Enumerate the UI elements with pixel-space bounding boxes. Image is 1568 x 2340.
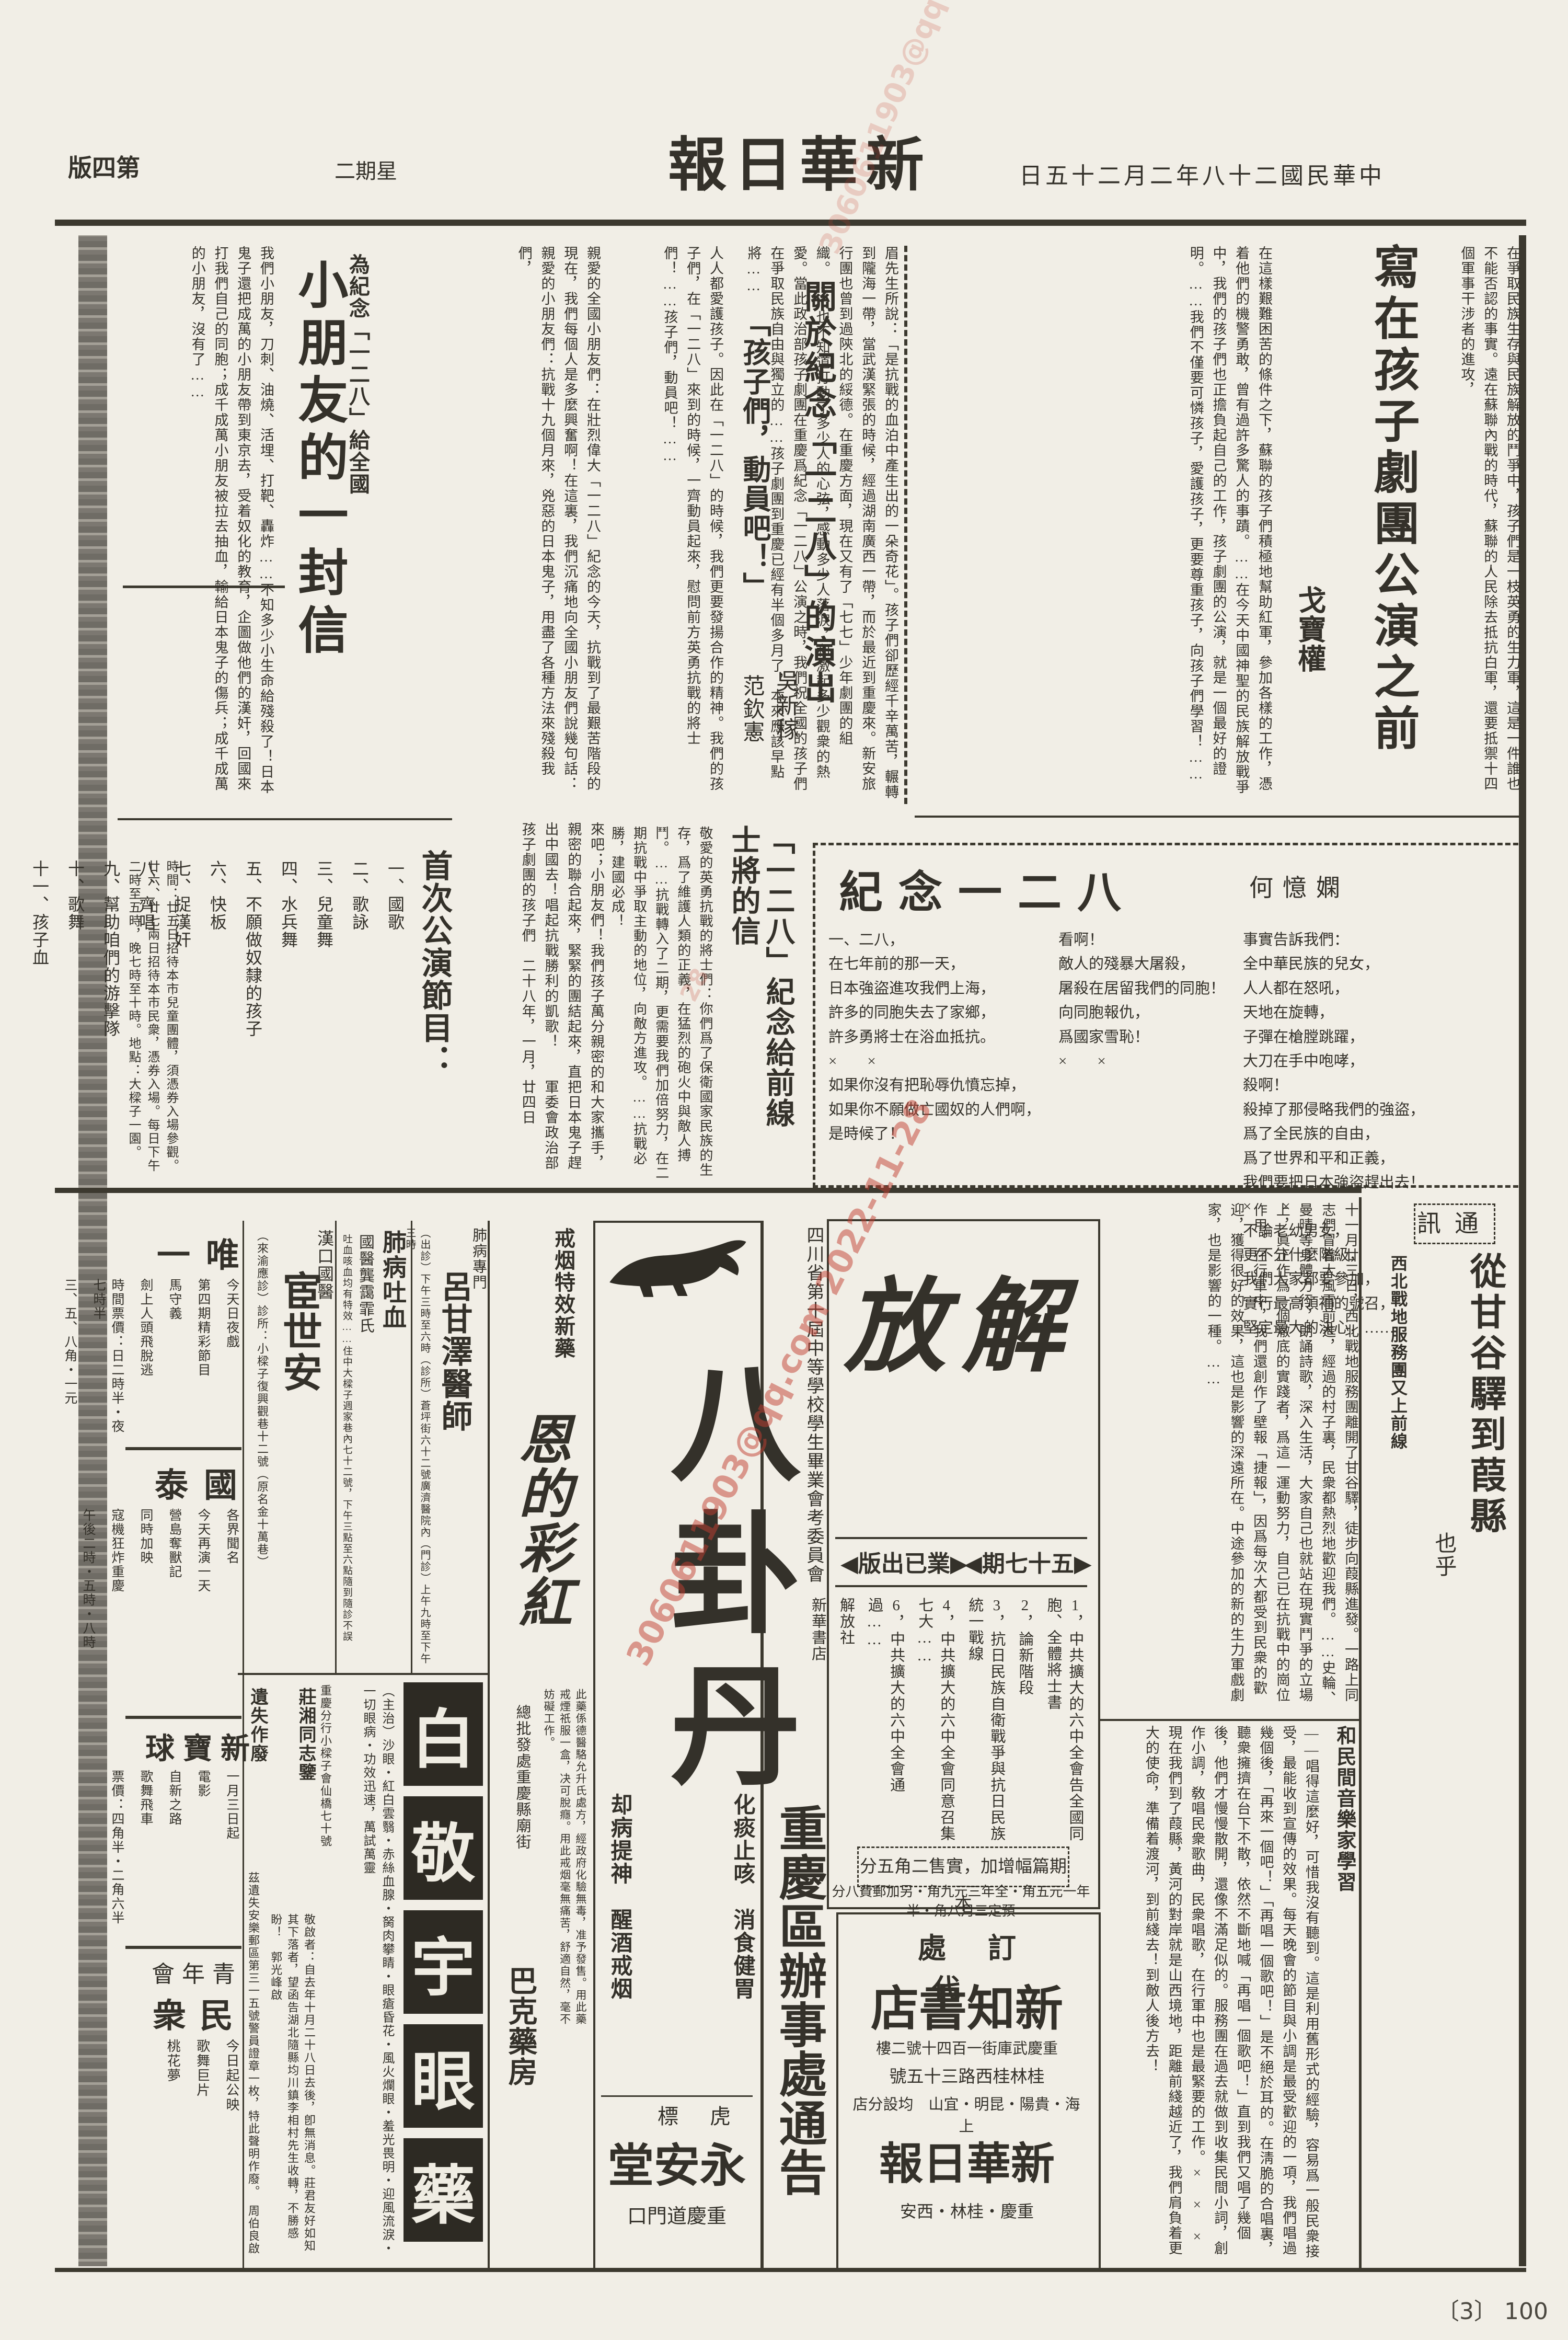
xinzhi-name: 店書知新 bbox=[852, 1970, 1082, 2039]
jiefang-status: ◀版出已業▶ bbox=[840, 1545, 968, 1578]
poem-author: 何憶嫻 bbox=[1249, 869, 1350, 903]
doctor-gong-title: 肺病吐血 bbox=[375, 1230, 410, 1449]
poem-title: 紀念一二八 bbox=[839, 857, 1137, 921]
theater-line: 第四期精彩節目 bbox=[194, 1278, 212, 1440]
program-item: 十、歌舞 bbox=[63, 860, 88, 1174]
theater-line: 一月三日起 bbox=[223, 1770, 241, 1940]
correspondence-label-box: 訊通 bbox=[1414, 1203, 1495, 1244]
poem-line: 爲了世界和平和正義， bbox=[1243, 1146, 1425, 1171]
jiefang-content-item: 2，論新階段 bbox=[1014, 1597, 1036, 1843]
doctor-divider-1 bbox=[411, 1221, 412, 1673]
theater-line: 同時加映 bbox=[136, 1508, 155, 1710]
eyemed-char-block: 藥 bbox=[403, 2138, 483, 2242]
poem-line: 如果你沒有把恥辱仇憤忘掉， bbox=[828, 1073, 1041, 1097]
jiefang-content-item: 6，中共擴大的六中全會通過…… bbox=[863, 1597, 907, 1843]
poem-line: 爲國家雪恥！ bbox=[1058, 1025, 1225, 1049]
jiefang-issue: ◀期七十五▶ bbox=[964, 1545, 1092, 1578]
jieyan-body: 此藥係德醫駱允升氏處方，經政府化驗無毒，准予發售。用此藥戒煙祇服一盒，决可脫癮。… bbox=[543, 1689, 589, 2034]
correspondence-body1: 十一月廿三日，西北戰地服務團離開了甘谷驛，徒步向葭縣進發。一路上同志們冒着大風雪… bbox=[1100, 1202, 1362, 1717]
theater-rule-1 bbox=[125, 1447, 241, 1450]
program-item: 五、不願做奴隸的孩子 bbox=[240, 860, 266, 1174]
article-troupe-author: 戈寶權 bbox=[1289, 586, 1330, 795]
poem-line: 向同胞報仇， bbox=[1058, 1001, 1225, 1025]
theater-line: 今天日夜戲 bbox=[223, 1278, 241, 1440]
eyemed-char-block: 白 bbox=[403, 1682, 483, 1786]
poem-line: 人人都在怒吼， bbox=[1243, 977, 1425, 1001]
theater-line: 電影 bbox=[194, 1770, 212, 1940]
poem-line: 看啊！ bbox=[1058, 928, 1225, 952]
bagua-line2: 却病提神 醒酒戒烟 bbox=[604, 1793, 636, 2086]
bottom-rule bbox=[55, 2268, 1526, 2272]
xinzhi-cities: 安西・林桂・慶重 bbox=[868, 2198, 1066, 2222]
theater-rule-2 bbox=[125, 1716, 241, 1719]
theater-line: 三、五、八角・一元 bbox=[61, 1278, 79, 1440]
correspondence-body2: ——唱得這麼好，可惜我沒有聽到。這是利用舊形式的經驗，容易爲一般民衆接受，最能收… bbox=[1100, 1725, 1322, 2264]
correspondence-subhead2: 和民間音樂家學習 bbox=[1330, 1725, 1359, 1955]
correspondence-subhead: 西北戰地服務團又上前線 bbox=[1386, 1255, 1410, 1547]
poem-line: 爲了全民族的自由， bbox=[1243, 1122, 1425, 1146]
theater-line: 營島奪獸記 bbox=[165, 1508, 183, 1710]
poem-line: 殺掉了那侵略我們的強盜， bbox=[1243, 1098, 1425, 1122]
poem-line: 日本強盜進攻我們上海， bbox=[828, 977, 1041, 1001]
poem-columns: 一、二八，在七年前的那一天，日本強盜進攻我們上海，許多的同胞失去了家鄉，許多勇將… bbox=[828, 928, 1508, 1174]
eyemed-char-block: 宇 bbox=[403, 1910, 483, 2014]
poem-line: 全中華民族的兒女， bbox=[1243, 952, 1425, 976]
binding-edge bbox=[78, 235, 107, 2266]
program-item: 二、歌詠 bbox=[347, 860, 372, 1174]
theater-line: 票價：四角半・二角六半 bbox=[108, 1770, 126, 1940]
band1-rule-left bbox=[118, 818, 452, 820]
tiger-icon bbox=[604, 1230, 750, 1313]
masthead-rule bbox=[55, 220, 1526, 226]
notice-lost-title: 遺失作廢 bbox=[245, 1688, 270, 1865]
bagua-line1: 化痰止咳 消食健胃 bbox=[727, 1793, 758, 2086]
article-letter-cont: 來吧；小朋友們！我們孩子萬分親密的和大家攜手，親密的聯合起來，緊緊的團結起來，直… bbox=[456, 822, 607, 1183]
poem-line: × × bbox=[828, 1049, 1041, 1073]
correspondence-title: 從甘谷驛到葭縣 bbox=[1458, 1252, 1511, 1592]
theater-minzhong-lines: 今日起公映歌舞巨片桃花夢 bbox=[127, 2039, 241, 2258]
wavy-divider-1 bbox=[904, 246, 907, 804]
masthead-title: 報日華新 bbox=[653, 118, 946, 202]
article-troupe-body-a: 在爭取民族生存與民族解放的鬥爭中，孩子們是一枝英勇的生力軍，這是一件誰也不能否認… bbox=[1432, 246, 1524, 800]
edition-label: 版四第 bbox=[68, 149, 140, 183]
theater-line: 劍上人頭飛脫逃 bbox=[136, 1278, 155, 1440]
jieyan-dist: 總批發處重慶縣廟街 bbox=[511, 1704, 533, 1945]
eyemed-char-block: 敬 bbox=[403, 1796, 483, 1900]
jiefang-contents: 1，中共擴大的六中全會告全國同胞、全體將士書2，論新階段3，抗日民族自衛戰爭與抗… bbox=[835, 1597, 1086, 1843]
program-item: 六、快板 bbox=[205, 860, 230, 1174]
doctor-gong-name: 國醫龔靄霏氏 bbox=[353, 1234, 376, 1537]
poem-line: 事實告訴我們： bbox=[1243, 928, 1425, 952]
theater-line: 馬守義 bbox=[165, 1278, 183, 1440]
jiefang-rule-b bbox=[835, 1585, 1087, 1587]
theater-line: 午後二時・五時・八時 bbox=[79, 1508, 97, 1710]
program-item: 三、兒童舞 bbox=[312, 860, 337, 1174]
theater-guotai-lines: 各界聞名今天再演一天營島奪獸記同時加映寇機狂炸重慶午後二時・五時・八時 bbox=[127, 1508, 241, 1710]
poem-line: 大刀在手中咆哮， bbox=[1243, 1049, 1425, 1073]
theater-line: 自新之路 bbox=[165, 1770, 183, 1940]
article-mobilize-author: 范欽憲 bbox=[736, 674, 768, 800]
article-frontline-title2: 士將的信 bbox=[722, 825, 765, 1034]
poem-line: × × bbox=[1058, 1049, 1225, 1073]
eyemed-branch: 重慶分行小樑子會仙橋七十號 bbox=[318, 1684, 333, 2264]
article-performance-body: 眉先生所說：「是抗戰的血泊中產生出的一朵奇花」。孩子們卻歷經千辛萬苦，輾轉到隴海… bbox=[836, 246, 902, 802]
poem-line: 是時候了！ bbox=[828, 1122, 1041, 1146]
doctor-lu-name: 呂甘澤醫師 bbox=[432, 1270, 477, 1605]
program-item: 十一、孩子血 bbox=[27, 860, 52, 1174]
bagua-store: 堂安永 bbox=[606, 2129, 747, 2195]
theater-weiyi-lines: 今天日夜戲第四期精彩節目馬守義劍上人頭飛脫逃時間票價：日二時半・夜七時半三、五、… bbox=[127, 1278, 241, 1440]
article-mobilize-title: 「孩子們，動員吧！」 bbox=[734, 308, 775, 643]
jiefang-name: 放解 bbox=[836, 1244, 1087, 1392]
jiefang-content-item: 解放社 bbox=[835, 1597, 857, 1843]
xinzhi-addr2: 號五十三路西桂林桂 bbox=[852, 2062, 1082, 2087]
poem-col-2: 看啊！敵人的殘暴大屠殺，屠殺在居留我們的同胞！向同胞報仇，爲國家雪恥！× × bbox=[1058, 928, 1225, 1174]
theater-minzhong-name: 衆民 bbox=[153, 1989, 247, 2037]
poem-line: 一、二八， bbox=[828, 928, 1041, 952]
notice-zhuang-body: 敬啟者：自去年十月二十八日去後，卽無消息。莊君友好如知其下落者，望函告湖北隨縣均… bbox=[268, 1913, 317, 2264]
theater-xinbaoqiu-name: 球寶新 bbox=[145, 1725, 258, 1768]
jiefang-content-item: 3，抗日民族自衛戰爭與抗日民族統一戰線 bbox=[964, 1597, 1008, 1843]
eyemed-indications: （主治）沙眼・紅白雲翳・赤絲血腺・胬肉攀睛・眼瘡昏花・風火爛眼・羞光畏明・迎風流… bbox=[335, 1684, 396, 2264]
article-letter-title: 小朋友的一封信 bbox=[282, 259, 355, 792]
program-note: 時間：廿五日招待本市兒童團體，須憑券入場參觀。廿六、廿七兩日招待本市民衆，憑券入… bbox=[125, 860, 180, 1174]
bagua-brand: 標虎 bbox=[658, 2100, 762, 2130]
doctor-huan-name: 宦世安 bbox=[270, 1270, 327, 1521]
correspondence-label: 訊通 bbox=[1417, 1210, 1492, 1237]
theater-line: 今日起公映 bbox=[222, 2039, 241, 2258]
xinzhi-paper: 報日華新 bbox=[862, 2129, 1071, 2192]
article-troupe-title: 寫在孩子劇團公演之前 bbox=[1359, 243, 1425, 802]
poem-line: 許多勇將士在浴血抵抗。 bbox=[828, 1025, 1041, 1049]
doctors-bottom-rule bbox=[238, 1673, 489, 1675]
theater-line: 時間票價：日二時半・夜七時半 bbox=[89, 1278, 126, 1440]
jieyan-name: 恩的彩紅 bbox=[502, 1412, 579, 1673]
poem-col-3: 事實告訴我們：全中華民族的兒女，人人都在怒吼，天地在旋轉，子彈在槍膛跳躍，大刀在… bbox=[1243, 928, 1425, 1174]
theater-line: 寇機狂炸重慶 bbox=[108, 1508, 126, 1710]
article-letter-body1: 親愛的全國小朋友們：在壯烈偉大「一二八」紀念的今天，抗戰到了最艱苦階段的現在，我… bbox=[371, 246, 604, 802]
eyemed-char-block: 眼 bbox=[403, 2024, 483, 2128]
article-mobilize-body: 人人都愛護孩子。因此在「一二八」的時候，我們更要發揚合作的精神。我們的孩子們，在… bbox=[619, 246, 727, 802]
jiefang-rule-a bbox=[835, 1537, 1087, 1539]
xinzhi-addr1: 樓二號十四百一街庫武慶重 bbox=[852, 2036, 1082, 2058]
band3-rule bbox=[55, 1188, 1362, 1193]
theater-weiyi-name: 一唯 bbox=[157, 1229, 255, 1277]
theater-line: 歌舞飛車 bbox=[136, 1770, 155, 1940]
doctor-huan-info: （來渝應診）診所：小樑子復興觀巷十二號（原名金十萬巷） bbox=[248, 1230, 270, 1669]
poem-line: 殺啊！ bbox=[1243, 1073, 1425, 1097]
program-title: 首次公演節目： bbox=[412, 850, 457, 1163]
article-frontline-body: 敬愛的英勇抗戰的將士們：你們爲了保衛國家民族的生存，爲了維護人類的正義，在猛烈的… bbox=[612, 826, 716, 1182]
jieyan-store: 巴克藥房 bbox=[499, 1966, 541, 2112]
poem-line: 許多的同胞失去了家鄉， bbox=[828, 1001, 1041, 1025]
article-letter-body2: 我們小朋友，刀刺、油燒、活埋、打靶、轟炸……不知多少小生命給殘殺了！日本鬼子還把… bbox=[118, 246, 277, 800]
program-item: 九、幫助咱們的游擊隊 bbox=[98, 860, 123, 1174]
poem-line: 子彈在槍膛跳躍， bbox=[1243, 1025, 1425, 1049]
theater-minzhong-venue: 會年青 bbox=[152, 1955, 243, 1989]
program-items: 一、國歌二、歌詠三、兒童舞四、水兵舞五、不願做奴隸的孩子六、快板七、捉漢奸八、齊… bbox=[186, 860, 408, 1174]
theater-line: 各界聞名 bbox=[223, 1508, 241, 1710]
correspondence-rule bbox=[1100, 1719, 1359, 1721]
poem-line: 如果你不願做亡國奴的人們啊， bbox=[828, 1098, 1041, 1122]
correspondence-author: 也乎 bbox=[1428, 1532, 1460, 1636]
notice-zhuang-title: 莊湘同志鑒 bbox=[293, 1688, 318, 1907]
program-item: 四、水兵舞 bbox=[276, 860, 301, 1174]
poem-line: 在七年前的那一天， bbox=[828, 952, 1041, 976]
weekday-label: 二期星 bbox=[335, 154, 397, 185]
poem-col-1: 一、二八，在七年前的那一天，日本強盜進攻我們上海，許多的同胞失去了家鄉，許多勇將… bbox=[828, 928, 1041, 1174]
jiefang-content-item: 4，中共擴大的六中全會同意召集七大…… bbox=[914, 1597, 958, 1843]
doctor-lu-info: （出診）下午三時至六時（診所）蒼坪街六十二號廣濟醫院內（門診）上午九時至下午三時 bbox=[413, 1228, 432, 1667]
theater-xinbaoqiu-lines: 一月三日起電影自新之路歌舞飛車票價：四角半・二角六半 bbox=[127, 1770, 241, 1940]
poem-line: 敵人的殘暴大屠殺， bbox=[1058, 952, 1225, 976]
doctor-gong-info: 吐血咳血均有特效……住中大樑子週家巷內七十二號，下午三點至六點隨到隨診不誤 bbox=[338, 1234, 353, 1668]
article-performance-author: 吳新稼 bbox=[768, 669, 802, 800]
band1-rule-right bbox=[915, 816, 1524, 818]
program-item: 一、國歌 bbox=[383, 860, 408, 1174]
theater-guotai-name: 泰國 bbox=[155, 1459, 253, 1507]
masthead-date: 日五十二月二年八十二國民華中 bbox=[1019, 157, 1385, 190]
bagua-address: 口門道慶重 bbox=[622, 2200, 732, 2229]
eyemed-blocks: 白敬宇眼藥 bbox=[403, 1682, 483, 2252]
bagua-rule bbox=[601, 2095, 753, 2097]
jiefang-content-item: 1，中共擴大的六中全會告全國同胞、全體將士書 bbox=[1042, 1597, 1086, 1843]
poem-line: 天地在旋轉， bbox=[1243, 1001, 1425, 1025]
article-troupe-body-b: 在這樣艱難困苦的條件之下，蘇聯的孩子們積極地幫助紅軍，參加各樣的工作，憑着他們的… bbox=[915, 246, 1275, 802]
theater-line: 今天再演一天 bbox=[194, 1508, 212, 1710]
theater-line: 歌舞巨片 bbox=[192, 2039, 211, 2258]
theater-line: 桃花夢 bbox=[163, 2039, 182, 2258]
bagua-name: 八卦丹 bbox=[627, 1354, 816, 1929]
archive-page-label: 〔3〕 100 bbox=[1436, 2292, 1548, 2326]
theater-rule-3 bbox=[125, 1946, 241, 1949]
newspaper-page: 版四第 二期星 報日華新 日五十二月二年八十二國民華中 在爭取民族生存與民族解放… bbox=[0, 0, 1568, 2340]
poem-line: 屠殺在居留我們的同胞！ bbox=[1058, 977, 1225, 1001]
